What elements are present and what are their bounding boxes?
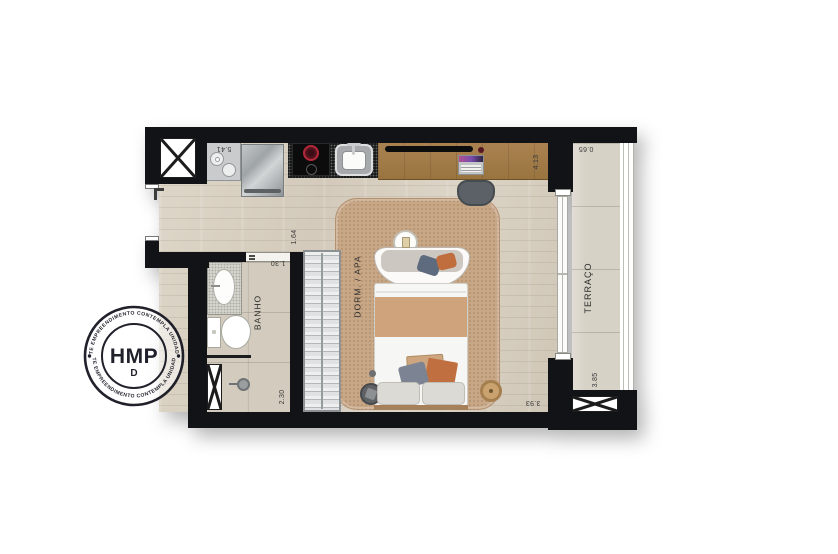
wardrobe-rail-icon <box>321 253 323 409</box>
terrace-door-jamb-bottom <box>555 353 571 360</box>
dim-kitchen-run: 5.41 <box>212 144 236 153</box>
bathroom-door-handle-icon2 <box>249 258 255 260</box>
bath-sink <box>213 269 235 305</box>
terrace-door-jamb-top <box>555 189 571 196</box>
dim-hall-width: 1.64 <box>290 222 300 252</box>
label-bedroom: DORM. / APA <box>353 254 364 320</box>
desk-accessory-dot <box>478 147 484 153</box>
terrace-railing <box>620 143 634 390</box>
burner-on-icon <box>303 145 319 161</box>
stamp-mark-glyph: D <box>130 368 137 379</box>
wall-bottom <box>188 412 557 428</box>
kitchen-faucet-spout-icon <box>352 143 355 155</box>
terrace-equipment-box <box>572 396 618 412</box>
fridge-handle <box>244 189 281 193</box>
shower-arm-icon <box>229 383 239 385</box>
wall-terrace-column-top <box>548 127 573 192</box>
hmp-stamp: ESTE EMPREENDIMENTO CONTEMPLA UNIDADES E… <box>82 304 186 408</box>
wall-bath-top <box>207 252 247 262</box>
side-table-book <box>402 237 410 248</box>
entrance-jamb-bottom <box>145 236 159 241</box>
laptop-keyboard <box>461 165 481 172</box>
wall-bath-right <box>290 252 303 414</box>
bed-fold-line <box>376 291 466 293</box>
bath-divider-wall <box>207 355 251 358</box>
terrace-floor <box>572 143 620 396</box>
washer-icon <box>210 152 224 166</box>
desk-chair <box>457 180 495 206</box>
dryer-icon <box>222 163 236 177</box>
stamp-separator-dot-left <box>88 354 91 357</box>
dim-terrace-depth: 0.65 <box>574 144 598 153</box>
bed-pillow-right <box>422 382 465 405</box>
tv-icon <box>385 146 473 152</box>
shower-duct-x-icon <box>208 365 221 409</box>
shaft-box <box>160 138 196 178</box>
dim-bath-length: 2.30 <box>278 382 288 412</box>
bathroom-door-handle-icon <box>249 255 255 257</box>
basket-center-dot <box>489 389 493 393</box>
dim-terrace-length: 3.85 <box>591 365 601 395</box>
stamp-brand-text: HMP <box>110 345 158 368</box>
dim-desk-wall: 4.13 <box>532 147 542 177</box>
bed-pillow-left <box>377 382 420 405</box>
dim-bedroom-width: 3.93 <box>520 398 546 407</box>
label-bathroom: BANHO <box>253 290 264 336</box>
shower-duct-box <box>207 364 222 410</box>
label-terrace: TERRAÇO <box>582 256 594 320</box>
wall-bath-left <box>188 252 207 414</box>
toilet-bowl <box>221 315 251 349</box>
shaft-x-icon <box>161 139 195 177</box>
dim-bath-door: 1.30 <box>266 258 290 267</box>
terrace-box-x-icon <box>573 397 617 411</box>
terrace-door-split-icon <box>558 273 567 275</box>
flower-icon <box>369 370 376 377</box>
entrance-door-leaf-icon <box>154 188 157 200</box>
laptop-screen <box>459 156 483 162</box>
stamp-separator-dot-right <box>177 354 180 357</box>
bed-blanket <box>375 297 467 337</box>
floor-plan: 5.41 4.13 0.65 1.64 1.30 2.30 3.93 3.85 … <box>145 127 637 430</box>
burner-off-icon <box>306 164 317 175</box>
headboard <box>374 405 468 410</box>
toilet-flush-button <box>212 330 216 334</box>
bath-faucet-icon <box>211 285 220 287</box>
